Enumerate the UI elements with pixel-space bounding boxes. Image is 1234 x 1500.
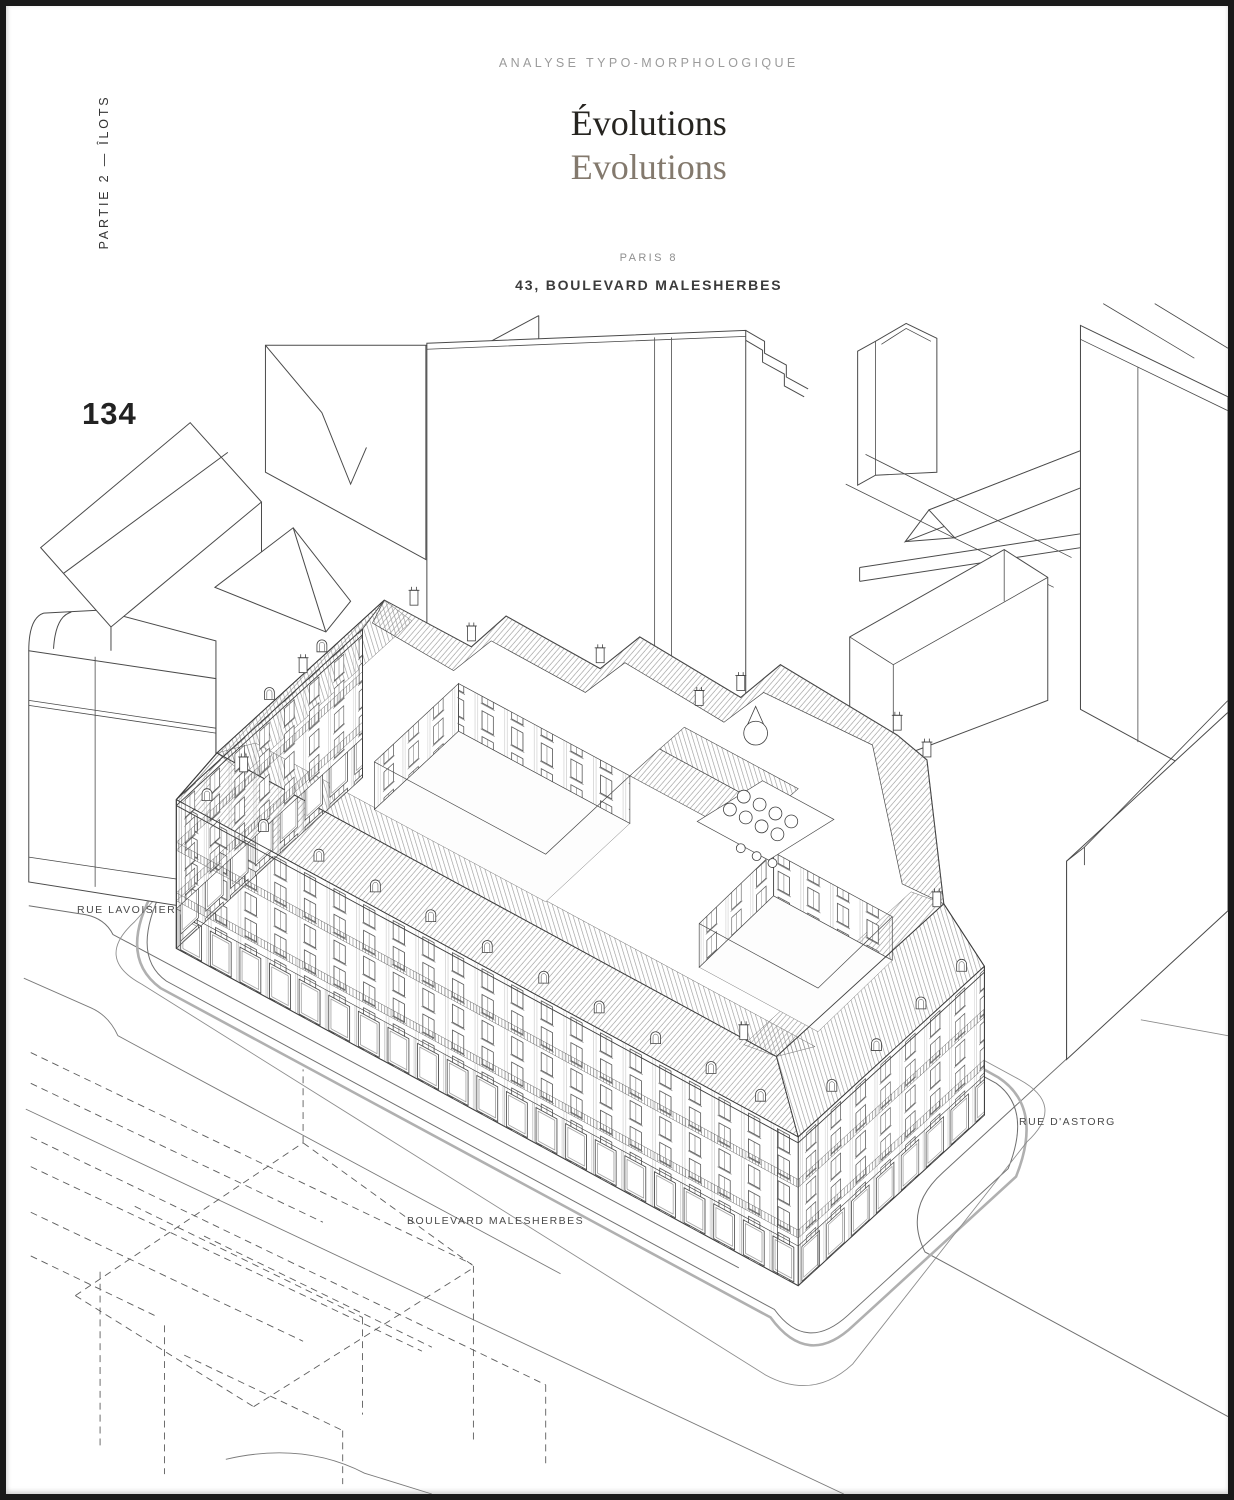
street-label-malesherbes: BOULEVARD MALESHERBES: [407, 1215, 584, 1227]
page-title-english: Evolutions: [571, 146, 727, 188]
address-label: 43, BOULEVARD MALESHERBES: [515, 277, 782, 293]
ghost-outline: [31, 1053, 546, 1485]
part-side-label: PARTIE 2 — ÎLOTS: [97, 95, 111, 250]
street-label-astorg: RUE D'ASTORG: [1019, 1116, 1116, 1128]
page-kicker: ANALYSE TYPO-MORPHOLOGIQUE: [499, 56, 799, 70]
book-page: ANALYSE TYPO-MORPHOLOGIQUE Évolutions Ev…: [0, 0, 1234, 1500]
district-label: PARIS 8: [620, 252, 678, 264]
axonometric-drawing: [6, 6, 1228, 1494]
street-label-lavoisier: RUE LAVOISIER: [77, 904, 176, 916]
page-number: 134: [82, 396, 137, 432]
page-title-french: Évolutions: [571, 102, 727, 144]
